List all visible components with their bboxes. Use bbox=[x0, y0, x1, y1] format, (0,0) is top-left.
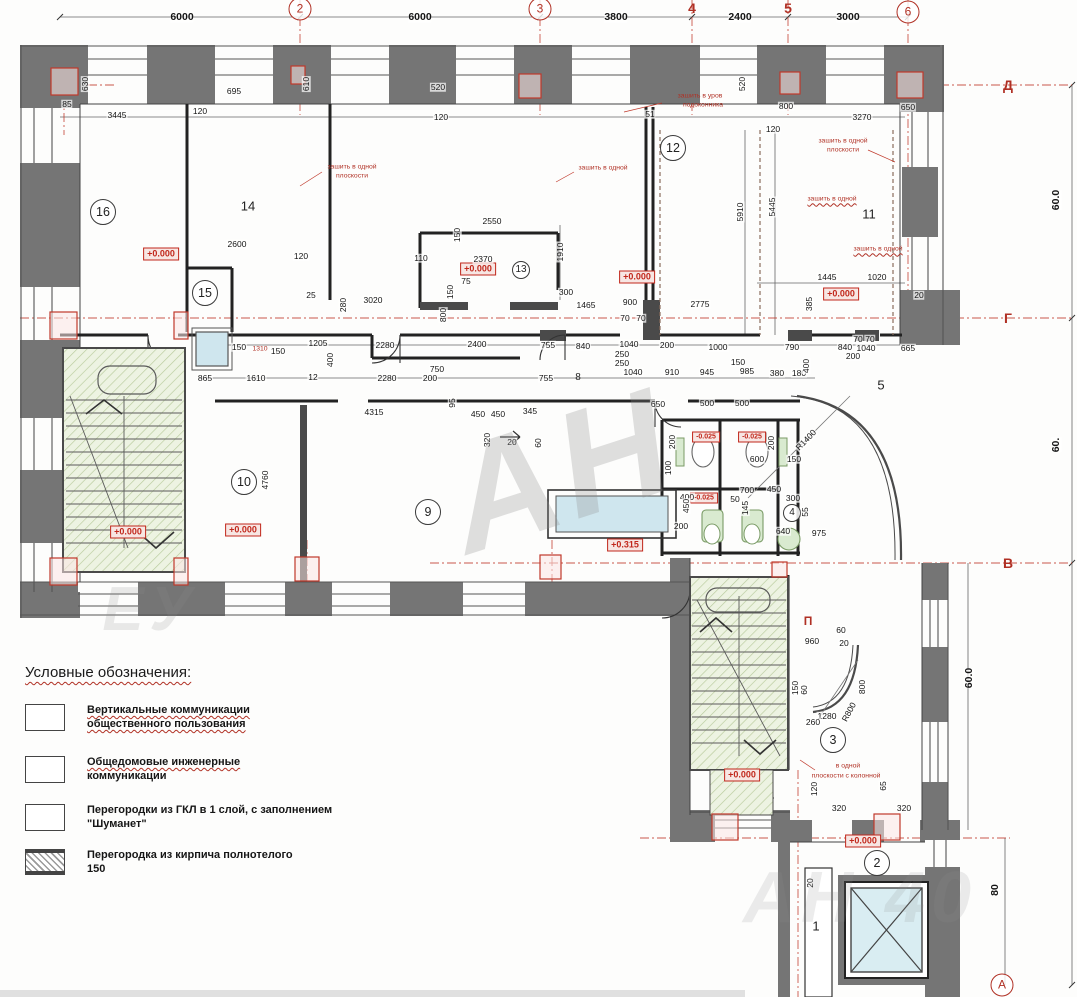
legend-swatch-gkl-partition bbox=[25, 804, 65, 831]
legend: Условные обозначения: Вертикальные комму… bbox=[25, 664, 385, 695]
curved-glass-wall bbox=[791, 396, 901, 712]
legend-item-label: Перегородка из кирпича полнотелого 150 bbox=[87, 849, 293, 877]
floor-plan-drawing bbox=[0, 0, 1077, 997]
legend-item: Вертикальные коммуникации общественного … bbox=[25, 704, 250, 732]
legend-item-label: Перегородки из ГКЛ в 1 слой, с заполнени… bbox=[87, 804, 332, 832]
legend-item-label: Вертикальные коммуникации общественного … bbox=[87, 704, 250, 732]
legend-item: Общедомовые инженерные коммуникации bbox=[25, 756, 240, 784]
dashed-partitions bbox=[660, 130, 893, 335]
legend-title: Условные обозначения: bbox=[25, 664, 385, 681]
stairwell-bottom bbox=[690, 577, 788, 815]
legend-swatch-brick-partition bbox=[25, 849, 65, 875]
legend-swatch-vertical-comms bbox=[25, 704, 65, 731]
legend-swatch-building-comms bbox=[25, 756, 65, 783]
floor-plan-page: 23456ДГВА6000600038002400300060.060.60.0… bbox=[0, 0, 1077, 997]
wc-fixtures bbox=[676, 433, 800, 550]
annotation-leaders bbox=[300, 103, 895, 770]
legend-item: Перегородки из ГКЛ в 1 слой, с заполнени… bbox=[25, 804, 332, 832]
scan-artifact bbox=[0, 990, 745, 997]
legend-item-label: Общедомовые инженерные коммуникации bbox=[87, 756, 240, 784]
legend-item: Перегородка из кирпича полнотелого 150 bbox=[25, 849, 293, 877]
stairwell-left bbox=[63, 348, 185, 572]
radius-leader-2 bbox=[820, 660, 858, 716]
room1-duct bbox=[805, 868, 832, 997]
elevator-shaft bbox=[838, 875, 935, 985]
